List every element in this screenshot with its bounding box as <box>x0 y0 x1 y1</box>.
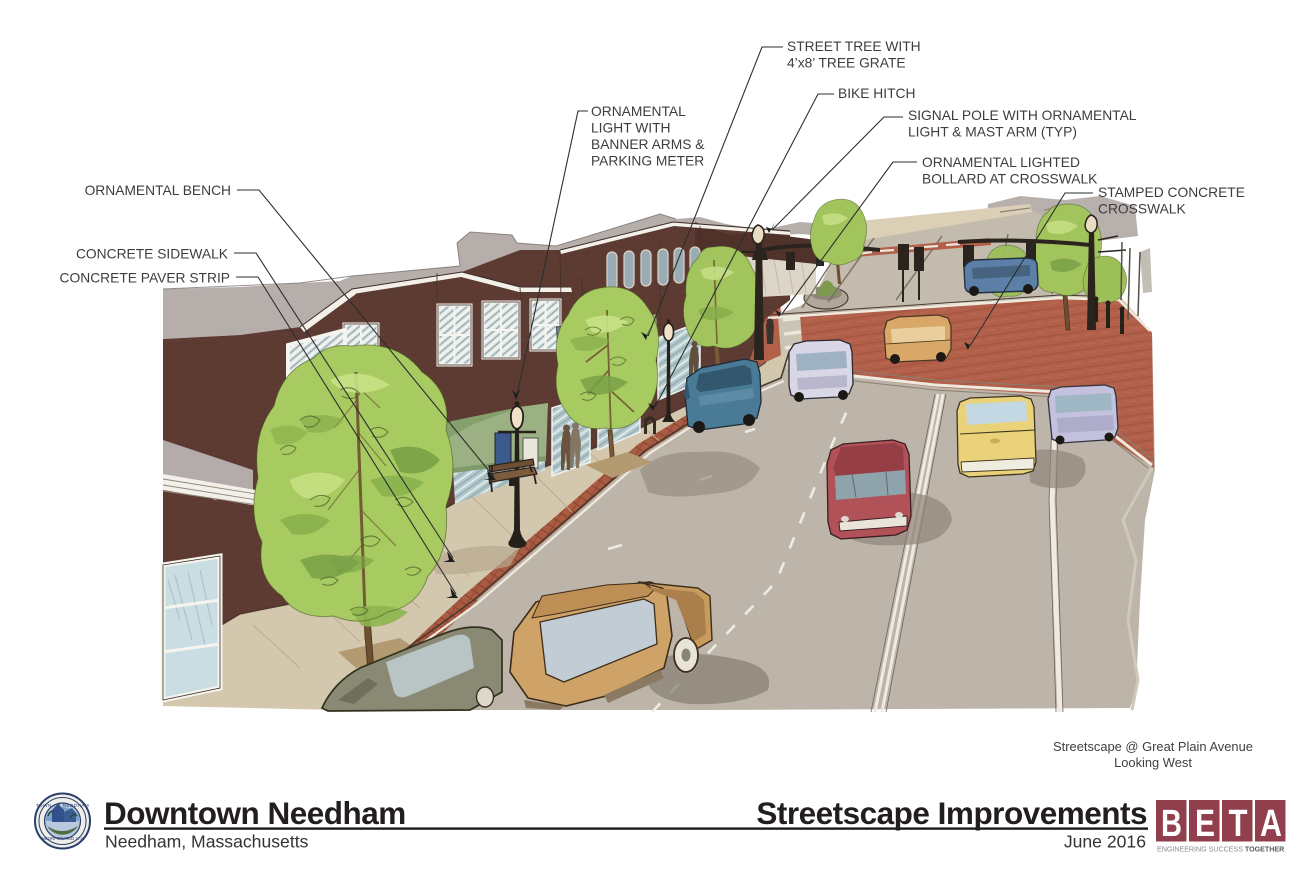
svg-text:INCORPORATED 1711: INCORPORATED 1711 <box>41 836 85 841</box>
svg-text:STREET TREE WITH: STREET TREE WITH <box>787 39 921 54</box>
svg-text:Streetscape Improvements: Streetscape Improvements <box>756 795 1147 831</box>
svg-text:Downtown Needham: Downtown Needham <box>104 795 406 831</box>
svg-text:CROSSWALK: CROSSWALK <box>1098 202 1186 217</box>
svg-text:PARKING METER: PARKING METER <box>591 154 704 169</box>
svg-text:BANNER ARMS &: BANNER ARMS & <box>591 137 704 152</box>
svg-text:STAMPED CONCRETE: STAMPED CONCRETE <box>1098 185 1245 200</box>
svg-text:B: B <box>1161 803 1182 845</box>
svg-text:T: T <box>1229 803 1248 845</box>
svg-text:CONCRETE PAVER STRIP: CONCRETE PAVER STRIP <box>60 271 230 286</box>
svg-text:ORNAMENTAL LIGHTED: ORNAMENTAL LIGHTED <box>922 155 1080 170</box>
svg-text:LIGHT & MAST ARM (TYP): LIGHT & MAST ARM (TYP) <box>908 125 1077 140</box>
svg-text:E: E <box>1195 803 1215 845</box>
svg-text:SIGNAL POLE WITH ORNAMENTAL: SIGNAL POLE WITH ORNAMENTAL <box>908 108 1137 123</box>
svg-text:BOLLARD AT CROSSWALK: BOLLARD AT CROSSWALK <box>922 172 1098 187</box>
svg-text:A: A <box>1260 803 1282 845</box>
svg-text:ORNAMENTAL BENCH: ORNAMENTAL BENCH <box>85 183 231 198</box>
svg-text:ENGINEERING SUCCESS TOGETHER: ENGINEERING SUCCESS TOGETHER <box>1157 846 1284 854</box>
svg-text:TOWN OF NEEDHAM: TOWN OF NEEDHAM <box>36 803 89 808</box>
svg-text:Looking West: Looking West <box>1114 755 1192 770</box>
svg-text:LIGHT WITH: LIGHT WITH <box>591 121 670 136</box>
svg-text:Needham, Massachusetts: Needham, Massachusetts <box>105 832 309 852</box>
svg-text:BIKE HITCH: BIKE HITCH <box>838 86 915 101</box>
svg-text:Streetscape @ Great Plain Aven: Streetscape @ Great Plain Avenue <box>1053 739 1253 754</box>
svg-text:4’x8’ TREE GRATE: 4’x8’ TREE GRATE <box>787 56 906 71</box>
svg-text:CONCRETE SIDEWALK: CONCRETE SIDEWALK <box>76 247 229 262</box>
svg-text:ORNAMENTAL: ORNAMENTAL <box>591 104 686 119</box>
svg-text:June 2016: June 2016 <box>1064 832 1146 852</box>
